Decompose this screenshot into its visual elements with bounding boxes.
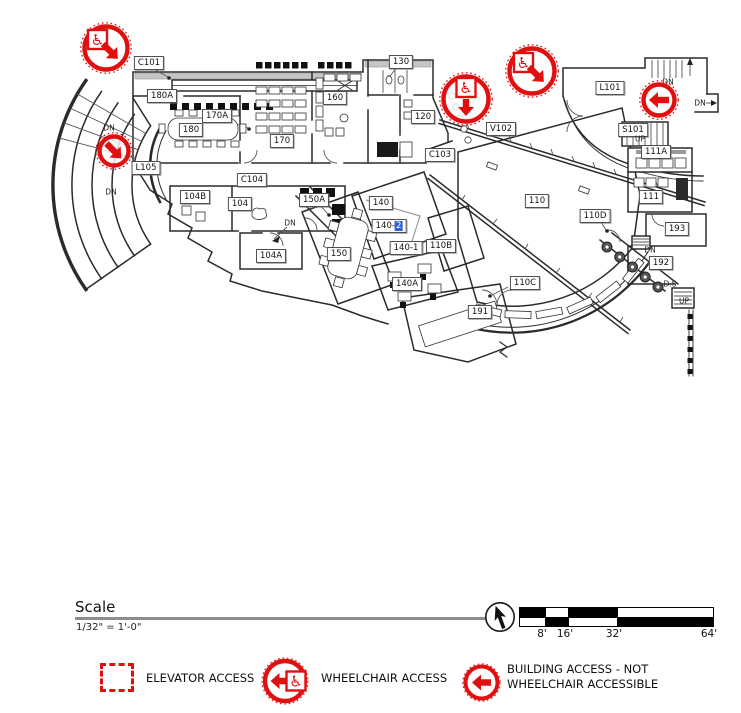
building-access-marker — [637, 78, 681, 126]
legend-label-wheelchair: WHEELCHAIR ACCESS — [321, 671, 447, 686]
wheelchair-access-icon: ♿ — [259, 655, 311, 711]
scale-underline — [75, 617, 486, 620]
building-access-icon — [460, 661, 503, 708]
north-arrow-icon — [482, 599, 518, 635]
scale-tick-8ft: 8' — [537, 628, 547, 640]
scale-bar: 8'16'32'64' — [519, 607, 714, 627]
scale-ratio: 1/32" = 1'-0" — [76, 622, 141, 633]
floor-plan-page: C101180A170A180170160130120V102C103L101S… — [0, 0, 741, 713]
scale-tick-16ft: 16' — [557, 628, 573, 640]
legend-label-building-access: BUILDING ACCESS - NOT WHEELCHAIR ACCESSI… — [507, 662, 707, 692]
legend-label-elevator: ELEVATOR ACCESS — [146, 671, 254, 686]
scale-tick-64ft: 64' — [701, 628, 717, 640]
svg-text:♿: ♿ — [459, 79, 472, 97]
elevator-access-icon — [100, 663, 134, 692]
access-markers-layer: ♿♿♿ — [0, 0, 741, 480]
svg-text:♿: ♿ — [289, 673, 302, 691]
wheelchair-access-marker: ♿ — [503, 42, 561, 104]
scale-tick-32ft: 32' — [606, 628, 622, 640]
wheelchair-access-marker: ♿ — [437, 70, 495, 132]
wheelchair-access-marker: ♿ — [78, 20, 134, 80]
scale-title: Scale — [75, 598, 115, 616]
building-access-marker — [93, 130, 135, 176]
